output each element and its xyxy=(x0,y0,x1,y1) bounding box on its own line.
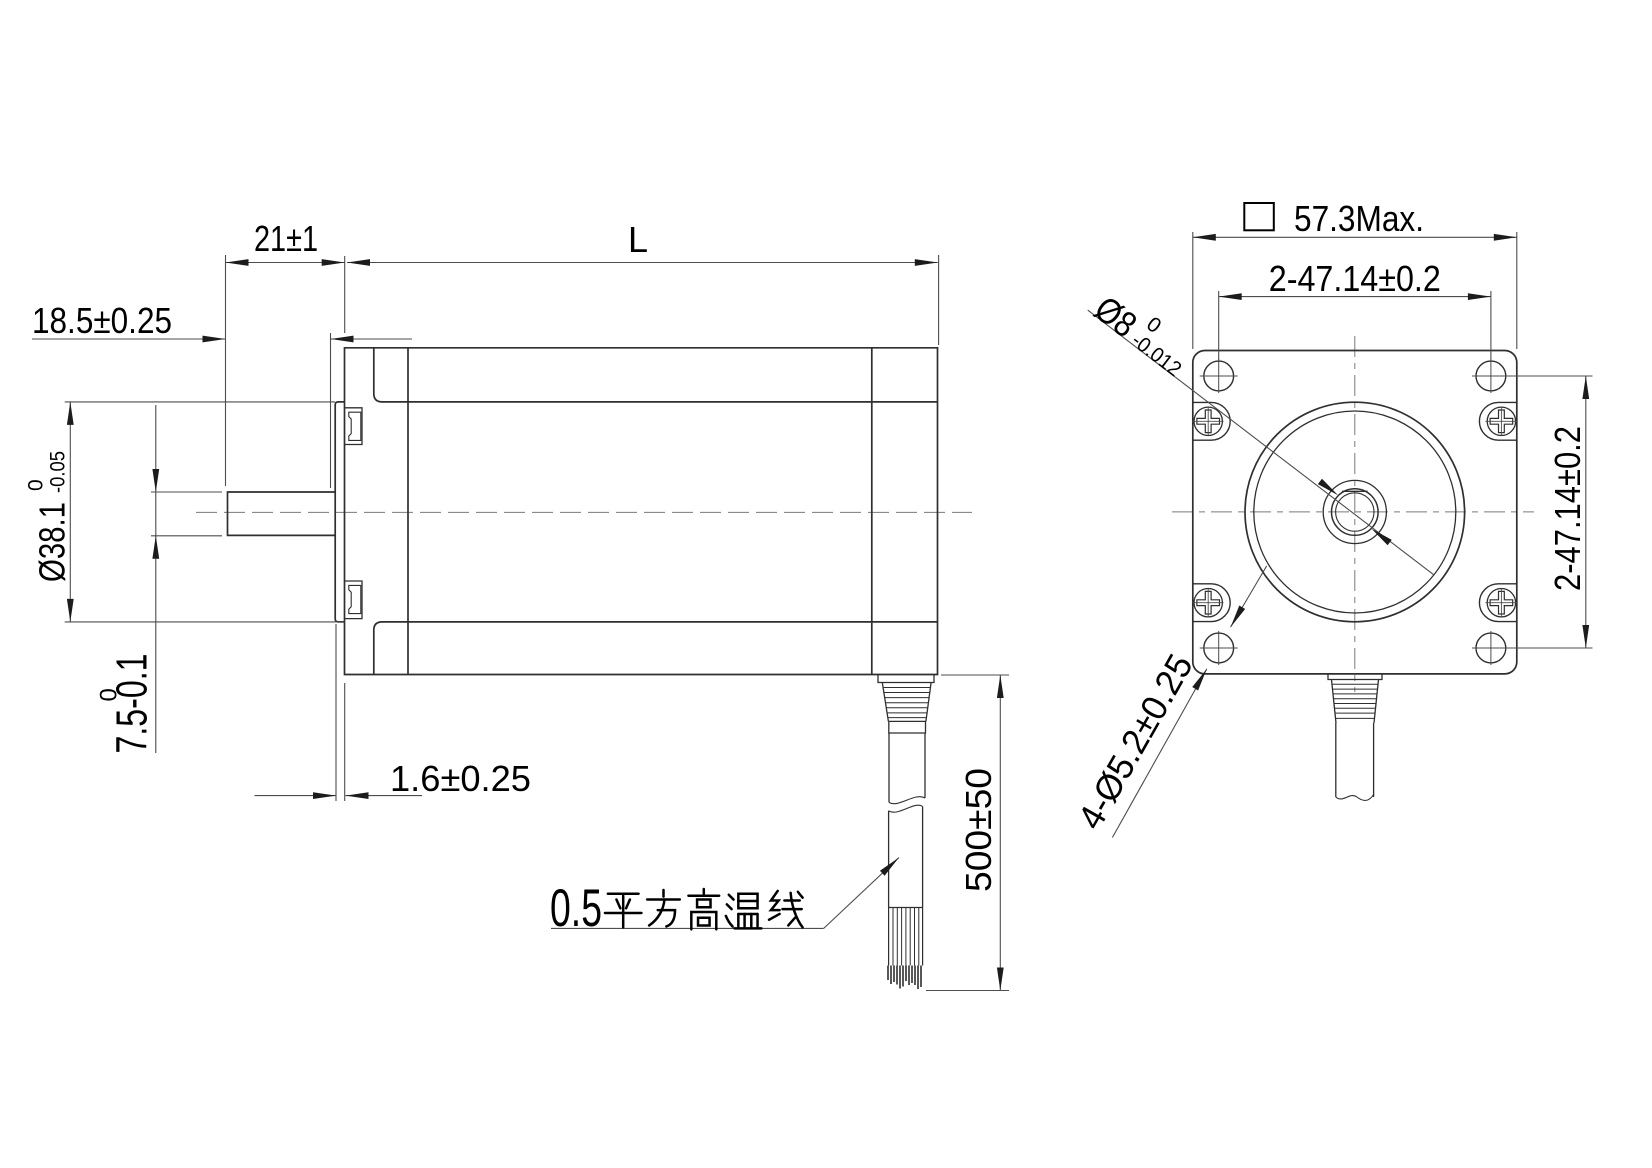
svg-text:57.3Max.: 57.3Max. xyxy=(1294,198,1424,239)
svg-text:2-47.14±0.2: 2-47.14±0.2 xyxy=(1547,426,1588,591)
svg-text:18.5±0.25: 18.5±0.25 xyxy=(32,300,172,341)
svg-text:1.6±0.25: 1.6±0.25 xyxy=(390,758,531,799)
svg-text:0.5: 0.5 xyxy=(550,879,602,938)
svg-text:500±50: 500±50 xyxy=(958,768,999,892)
svg-text:21±1: 21±1 xyxy=(254,218,318,259)
svg-text:Ø38.1: Ø38.1 xyxy=(32,502,73,582)
svg-text:0: 0 xyxy=(25,479,48,491)
svg-text:L: L xyxy=(628,219,648,260)
svg-text:2-47.14±0.2: 2-47.14±0.2 xyxy=(1269,258,1441,299)
svg-text:0: 0 xyxy=(96,688,123,701)
svg-text:-0.05: -0.05 xyxy=(47,451,70,493)
svg-text:7.5-0.1: 7.5-0.1 xyxy=(108,654,157,754)
